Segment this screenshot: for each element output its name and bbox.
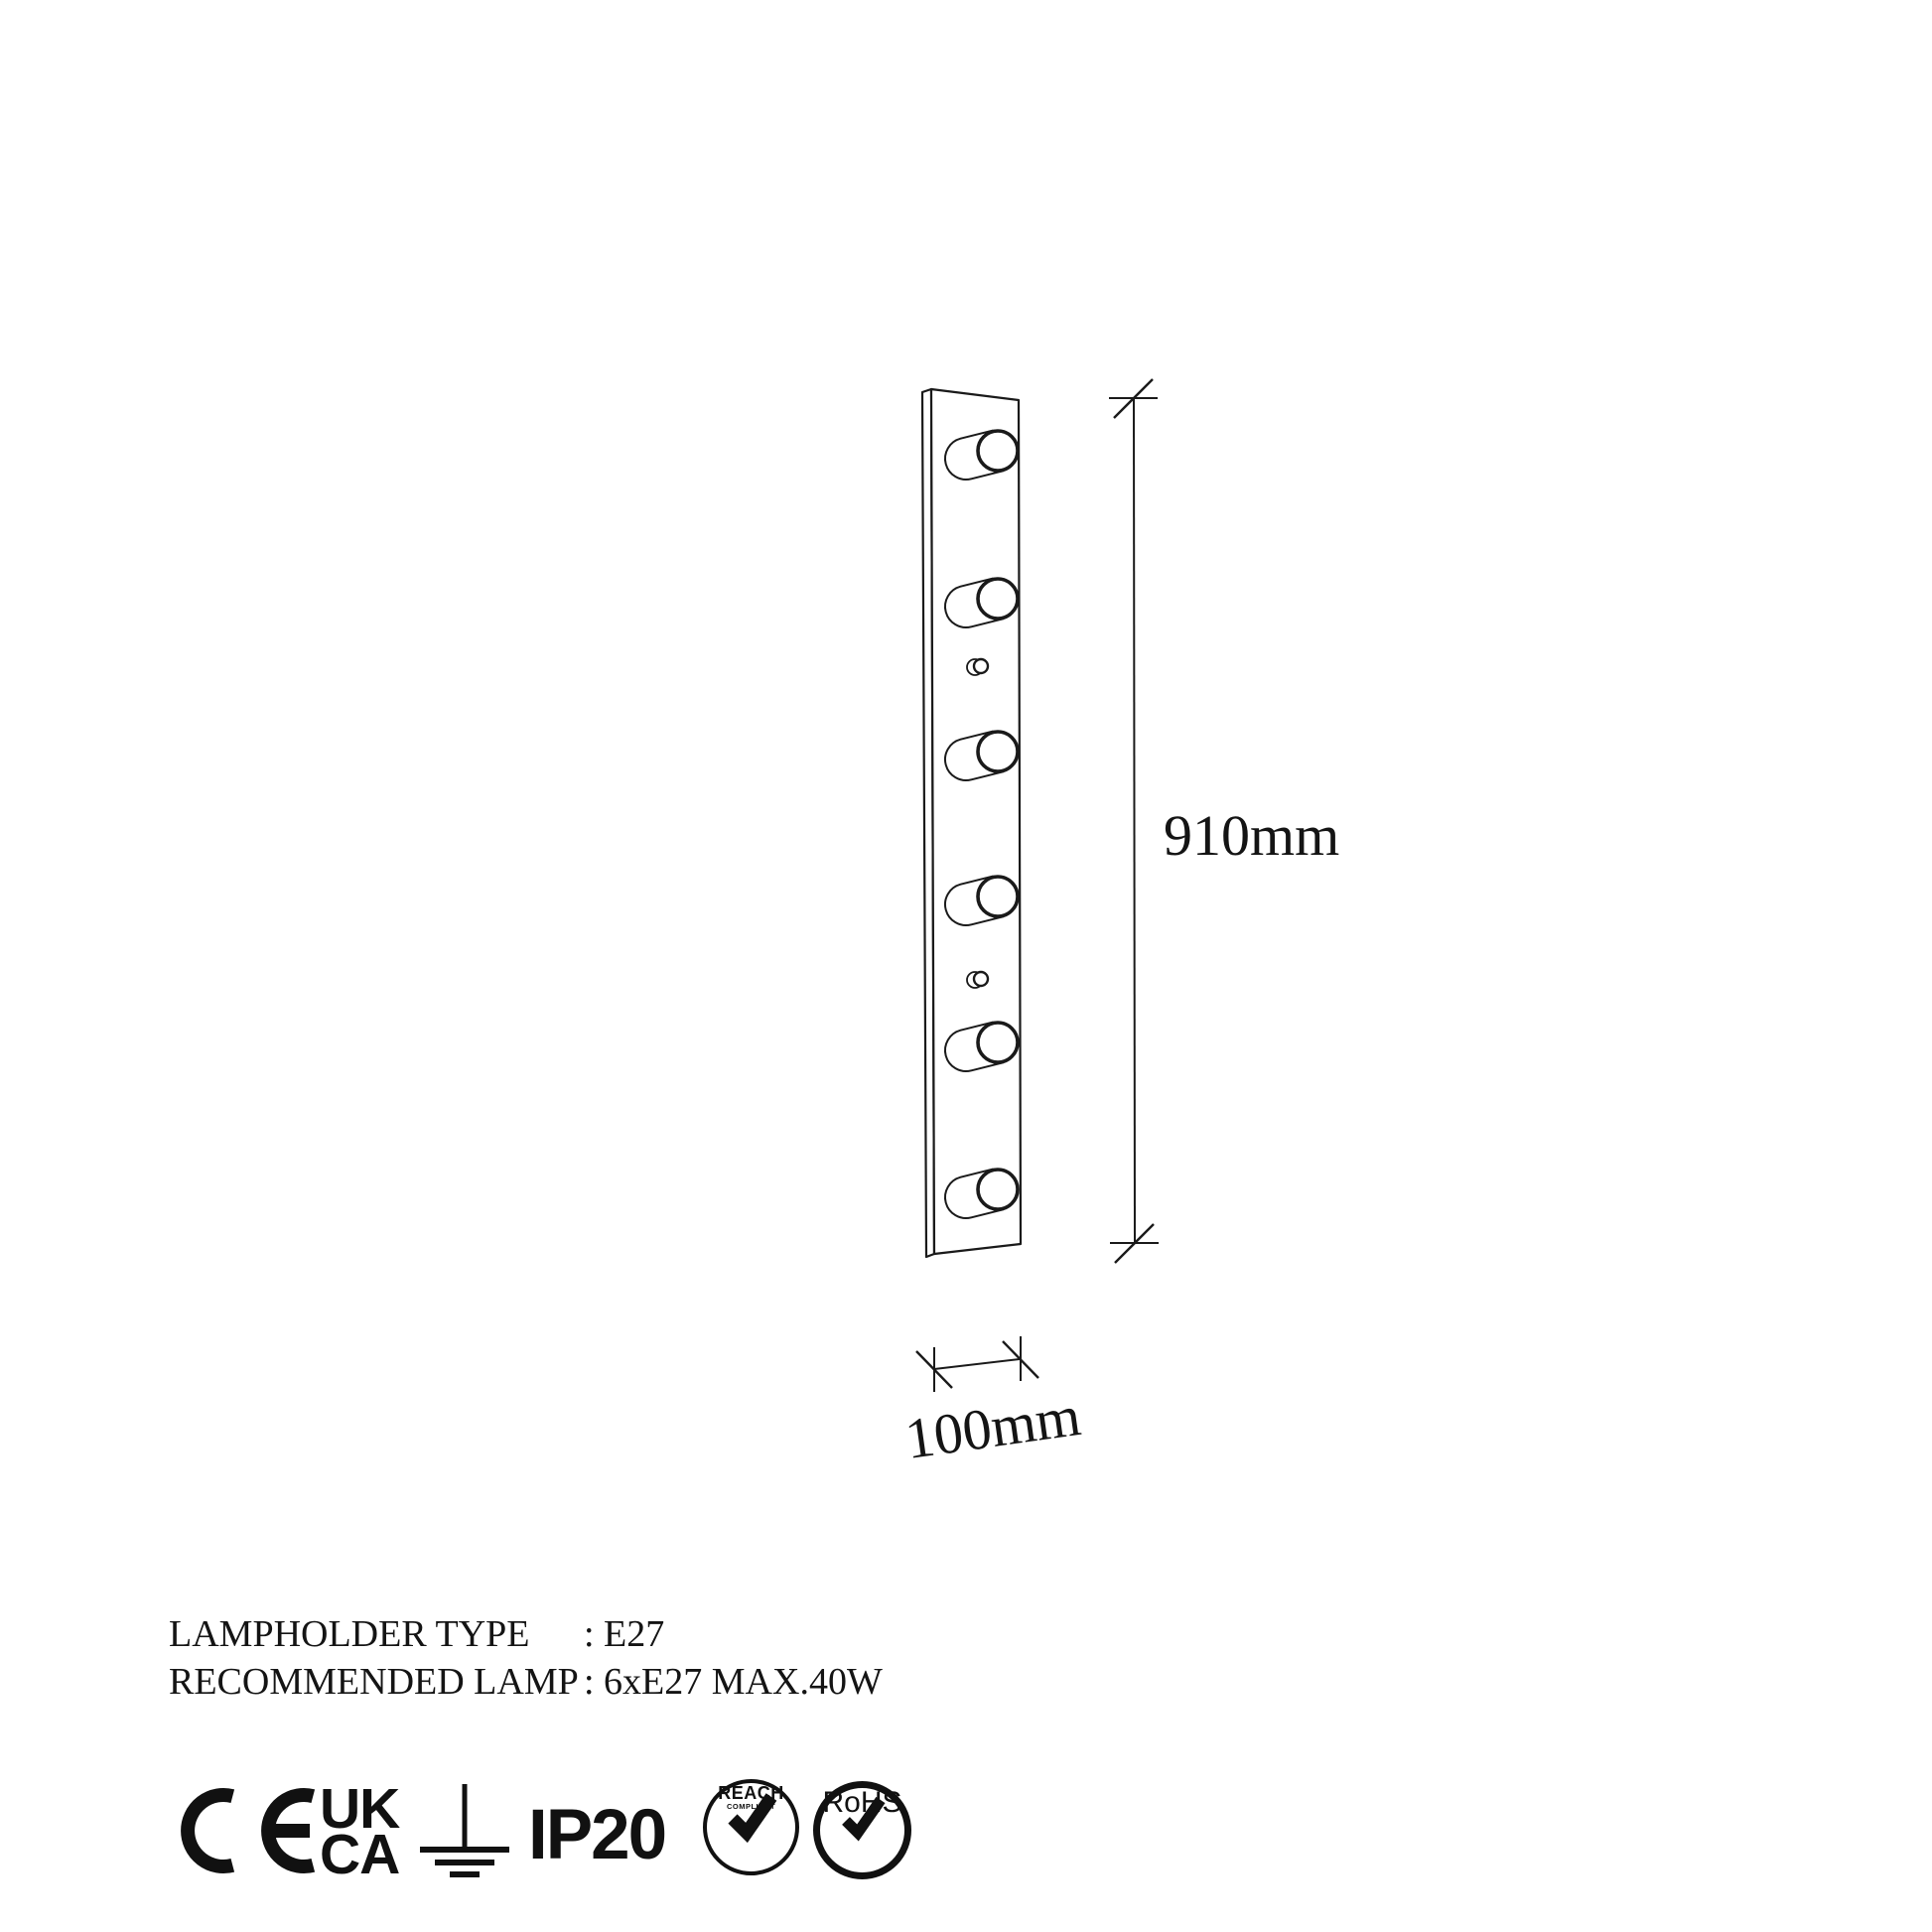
spec-row-recommended-lamp: RECOMMENDED LAMP: 6xE27 MAX.40W xyxy=(169,1658,883,1706)
fixture-bar xyxy=(922,389,1021,1257)
fixture-drawing-svg xyxy=(889,362,1216,1410)
spec-row-lampholder-type: LAMPHOLDER TYPE: E27 xyxy=(169,1610,664,1658)
switch-knob xyxy=(967,972,988,988)
checkmark-icon xyxy=(726,1791,777,1835)
spec-value: : 6xE27 MAX.40W xyxy=(584,1661,883,1703)
ukca-mark-icon: UK CA xyxy=(320,1786,399,1877)
height-dimension-line xyxy=(1109,379,1159,1263)
ce-mark-icon xyxy=(174,1782,323,1881)
ip-rating-label: IP20 xyxy=(528,1795,665,1875)
width-dimension-line xyxy=(916,1336,1038,1392)
spec-label: LAMPHOLDER TYPE xyxy=(169,1610,584,1658)
ukca-bottom-text: CA xyxy=(320,1832,399,1877)
spec-value: : E27 xyxy=(584,1613,664,1655)
rohs-icon: RoHS xyxy=(813,1781,911,1879)
technical-drawing-page: 910mm 100mm LAMPHOLDER TYPE: E27 RECOMME… xyxy=(0,0,1932,1932)
fixture-bar-front-face xyxy=(931,389,1021,1254)
ground-earth-icon xyxy=(410,1775,521,1882)
height-dimension-label: 910mm xyxy=(1164,802,1339,869)
spec-label: RECOMMENDED LAMP xyxy=(169,1658,584,1706)
reach-compliant-icon: REACH COMPLIANT xyxy=(703,1779,799,1875)
checkmark-icon xyxy=(840,1795,886,1836)
switch-knob xyxy=(967,659,988,675)
